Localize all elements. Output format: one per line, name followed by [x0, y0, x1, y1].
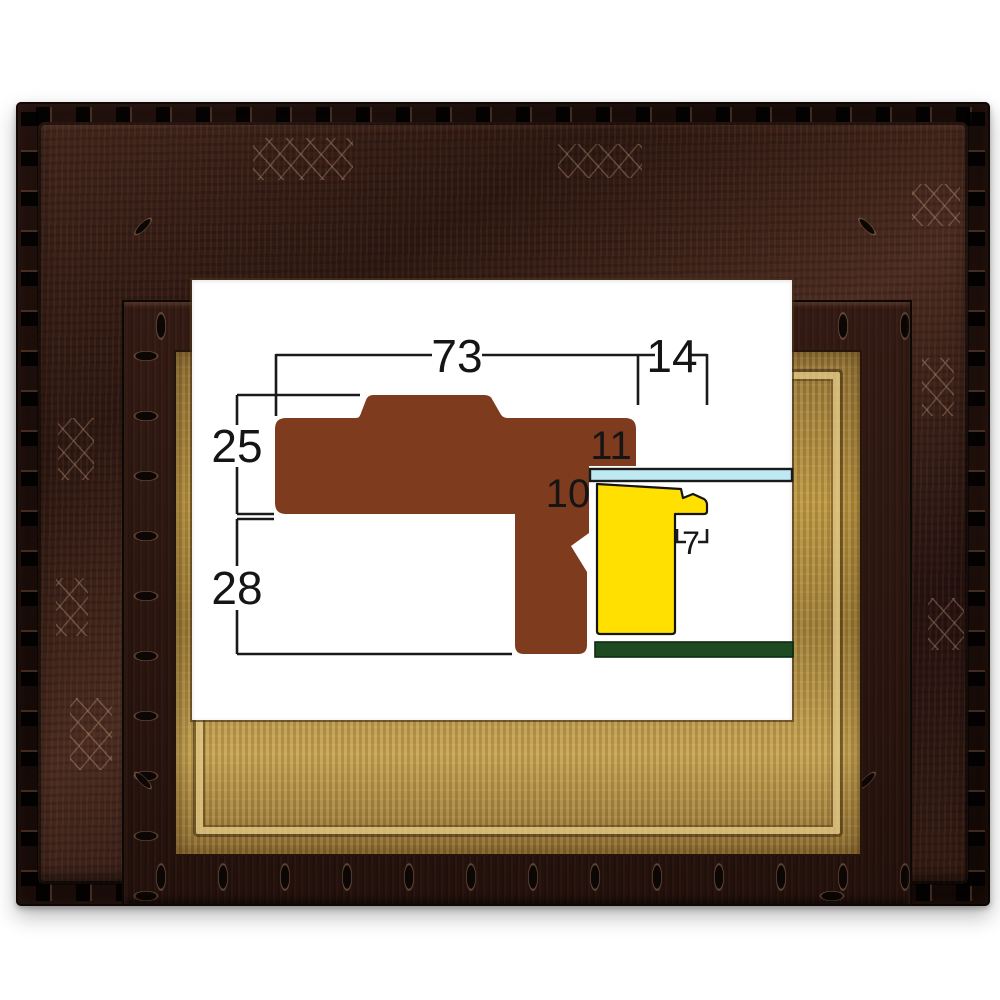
carved-dash-border-right — [967, 112, 985, 896]
crosshatch-carving — [70, 698, 112, 770]
crosshatch-carving — [912, 184, 960, 226]
carved-dash-border-left — [21, 112, 39, 896]
crosshatch-carving — [56, 578, 88, 636]
frame-aperture — [192, 280, 792, 720]
crosshatch-carving — [922, 358, 954, 416]
page-background: { "diagram": { "dimensions": { "overall_… — [0, 0, 1000, 1000]
crosshatch-carving — [58, 418, 94, 480]
crosshatch-carving — [253, 138, 353, 180]
crosshatch-carving — [928, 598, 964, 650]
crosshatch-carving — [558, 144, 642, 178]
